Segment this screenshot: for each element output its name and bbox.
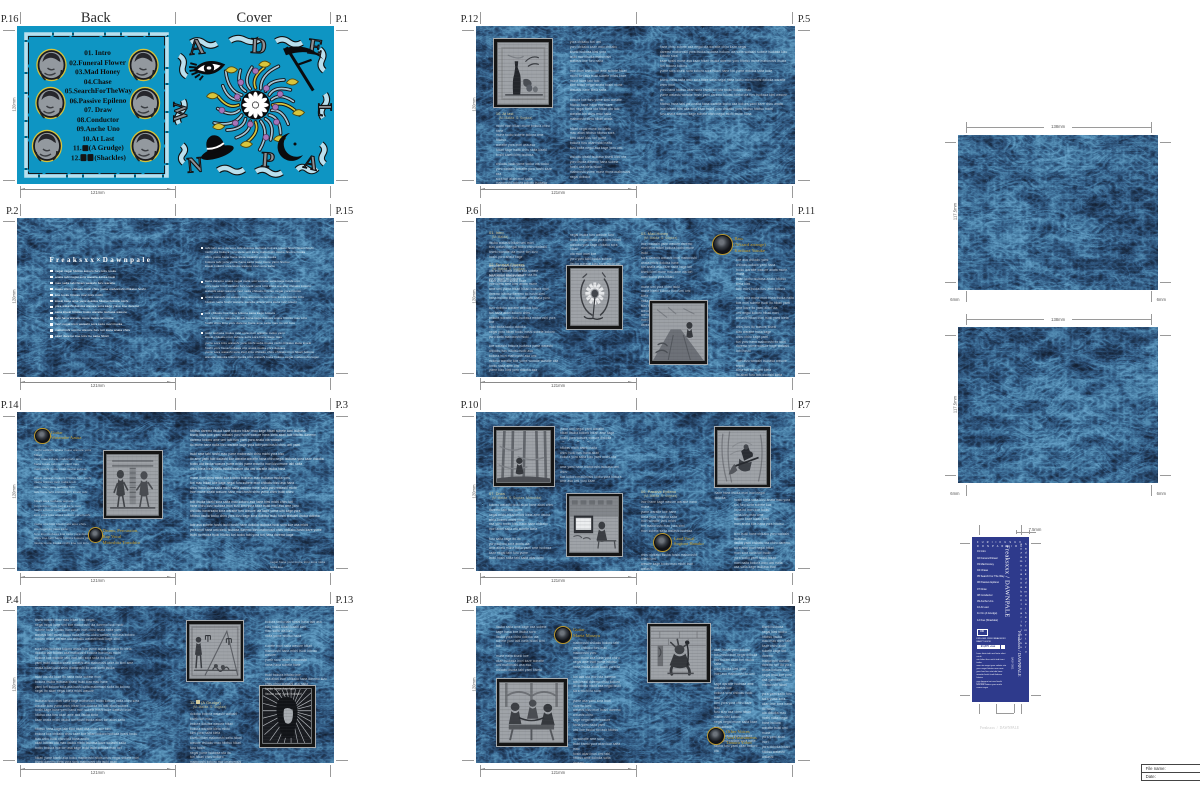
svg-text:D: D: [250, 32, 267, 58]
svg-text:A: A: [301, 151, 321, 176]
svg-text:N: N: [185, 151, 203, 177]
svg-text:A: A: [187, 33, 206, 60]
svg-text:L: L: [313, 103, 334, 116]
svg-text:P: P: [260, 146, 275, 172]
svg-text:W: W: [169, 102, 191, 122]
